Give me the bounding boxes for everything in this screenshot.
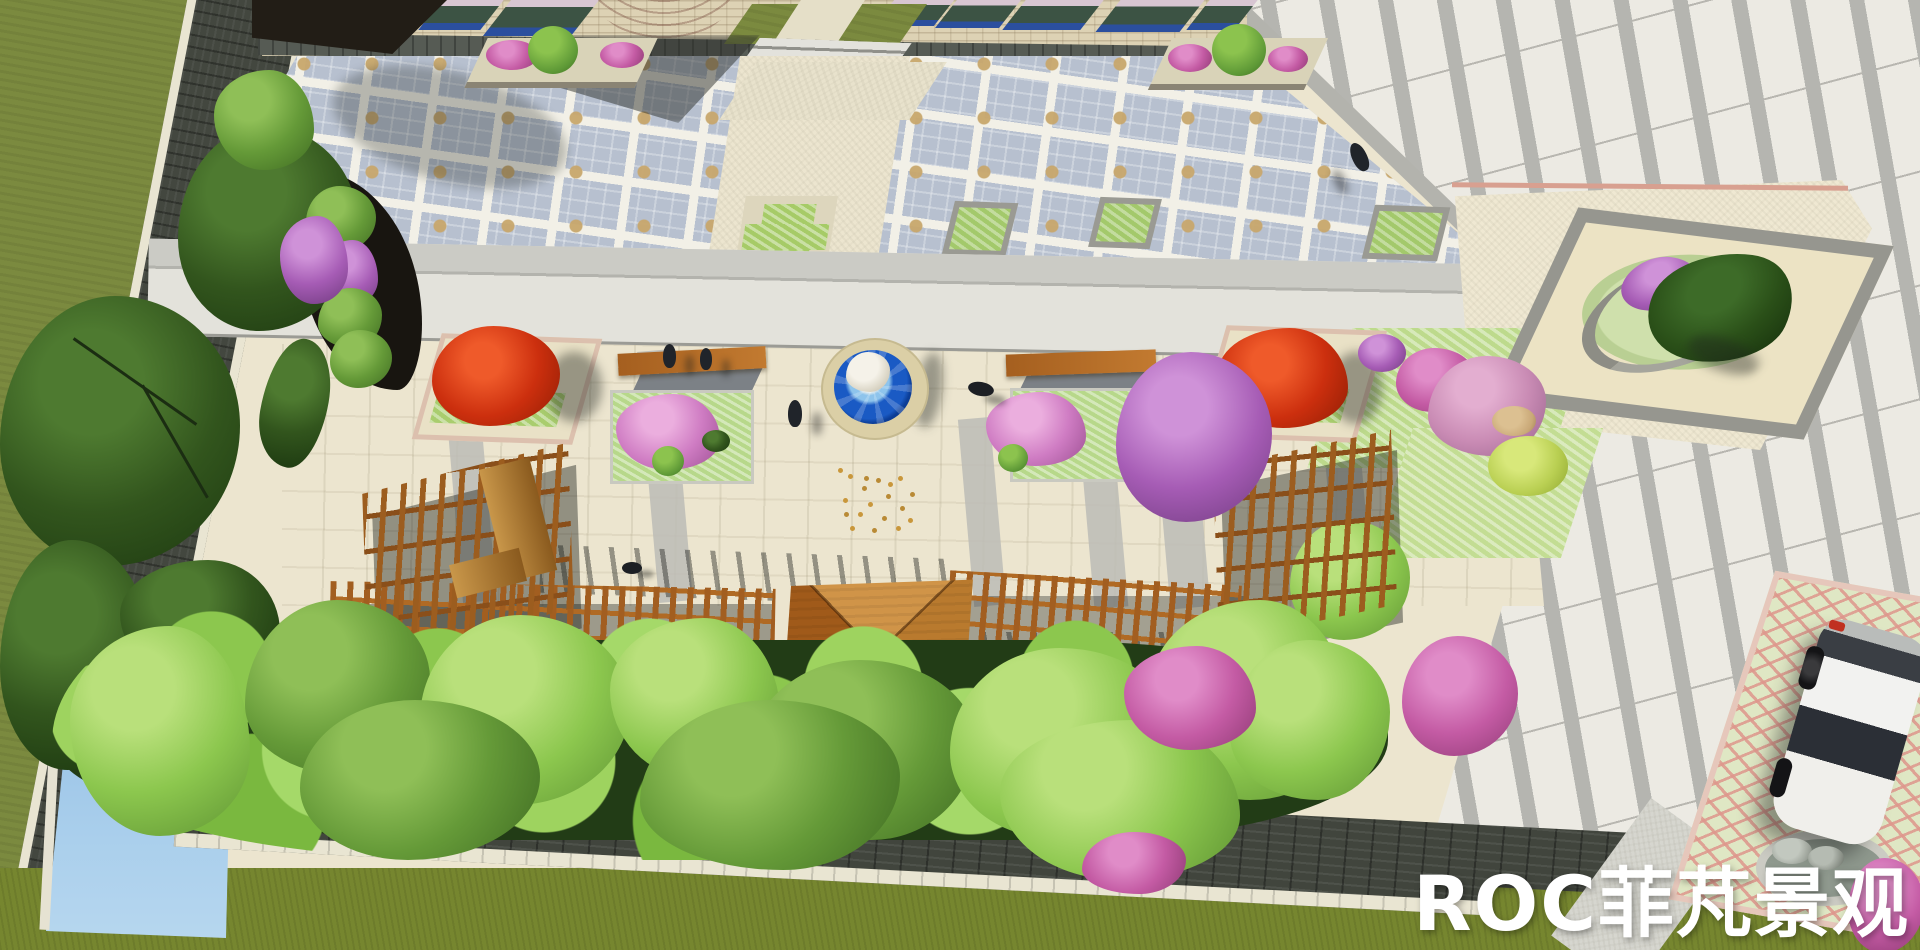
square-bed xyxy=(1088,197,1162,249)
dark-shrub xyxy=(702,430,730,452)
tree-upper-left xyxy=(214,70,314,170)
planter-flowers xyxy=(1268,46,1308,72)
landscape-rock xyxy=(1492,406,1536,436)
pink-flowering-shrub xyxy=(1082,832,1186,894)
shrub-ball xyxy=(998,444,1028,472)
entry-path-lower xyxy=(719,62,947,120)
square-bed xyxy=(942,201,1019,257)
planter-shrub-ball xyxy=(1212,24,1266,76)
scattered-petals xyxy=(838,468,843,473)
planter-shrub-ball xyxy=(528,26,578,74)
person-standing xyxy=(788,400,802,427)
square-bed xyxy=(1362,205,1451,262)
planter-flowers xyxy=(1168,44,1212,72)
watermark-text: ROC菲芃景观 xyxy=(1413,866,1910,942)
pink-flowering-shrub xyxy=(1124,646,1256,750)
dog-small xyxy=(622,562,642,574)
landscape-aerial-render: ROC菲芃景观 xyxy=(0,0,1920,950)
fountain-rock xyxy=(846,352,890,392)
taillight xyxy=(1828,619,1846,632)
yellow-green-shrub xyxy=(1488,436,1568,496)
purple-shrub xyxy=(1358,334,1406,372)
planter-flowers xyxy=(600,42,644,68)
person-seated xyxy=(700,348,712,370)
shrub-ball xyxy=(652,446,684,476)
plus-bed-green xyxy=(741,224,829,250)
purple-tree-small xyxy=(280,216,348,304)
person-seated xyxy=(663,344,676,368)
